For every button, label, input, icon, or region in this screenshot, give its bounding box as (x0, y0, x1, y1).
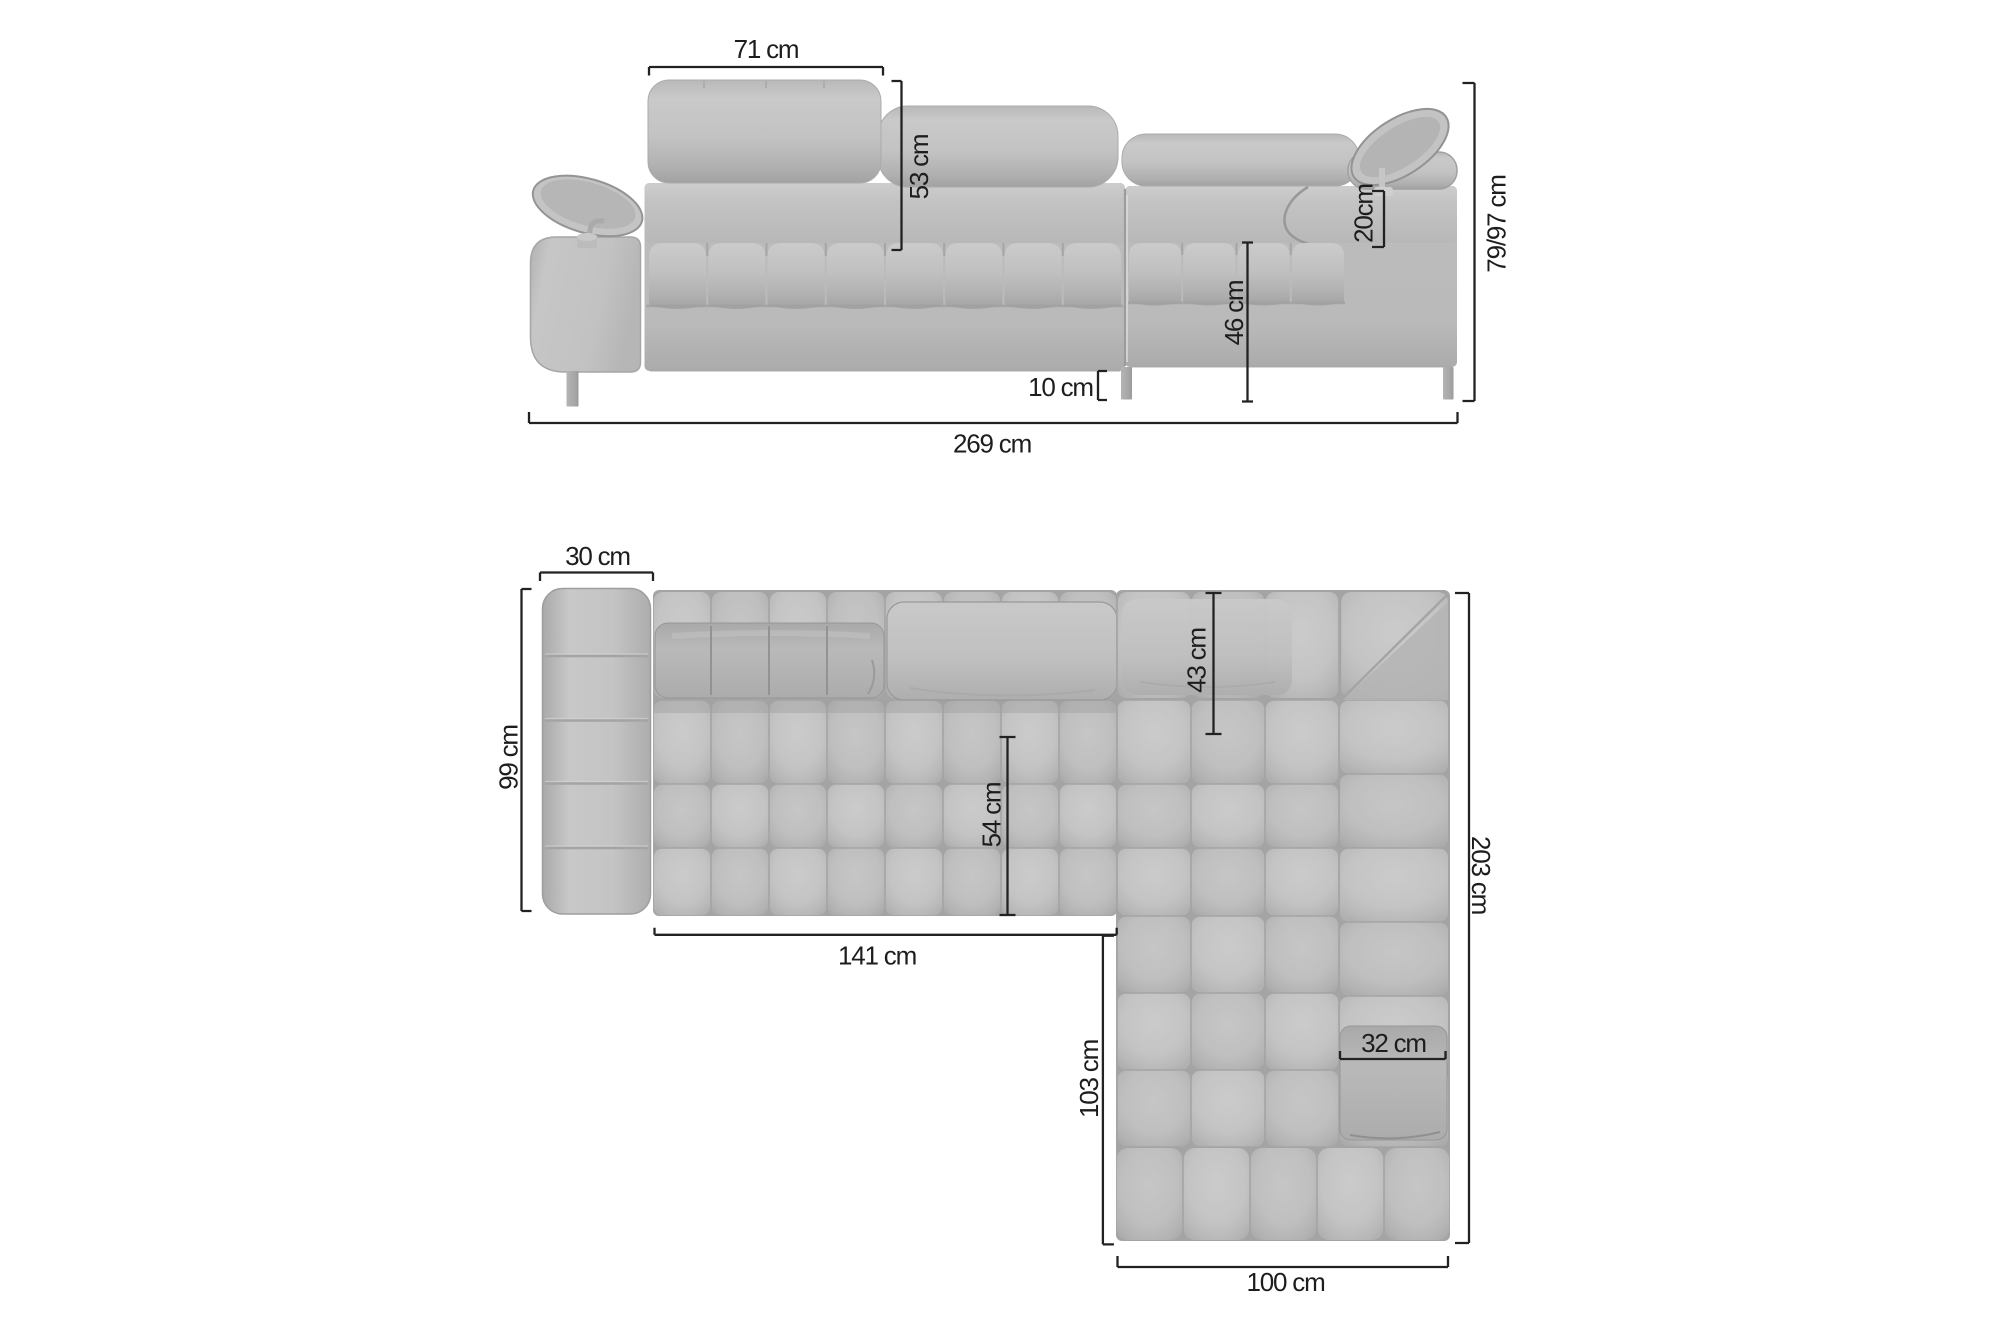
svg-text:10 cm: 10 cm (1028, 372, 1093, 402)
svg-text:71 cm: 71 cm (734, 34, 799, 64)
svg-text:46 cm: 46 cm (1219, 281, 1249, 346)
svg-text:141 cm: 141 cm (838, 941, 916, 971)
svg-text:43 cm: 43 cm (1182, 628, 1212, 693)
svg-text:79/97 cm: 79/97 cm (1482, 175, 1512, 272)
svg-text:203 cm: 203 cm (1466, 836, 1496, 914)
svg-text:30 cm: 30 cm (565, 541, 630, 571)
svg-text:53 cm: 53 cm (904, 135, 934, 200)
svg-text:99 cm: 99 cm (494, 725, 524, 790)
svg-text:20cm: 20cm (1349, 184, 1379, 243)
svg-text:54 cm: 54 cm (977, 783, 1007, 848)
svg-text:32 cm: 32 cm (1361, 1028, 1426, 1058)
svg-text:103 cm: 103 cm (1074, 1040, 1104, 1118)
svg-text:269 cm: 269 cm (953, 429, 1031, 459)
svg-text:100 cm: 100 cm (1246, 1267, 1324, 1297)
